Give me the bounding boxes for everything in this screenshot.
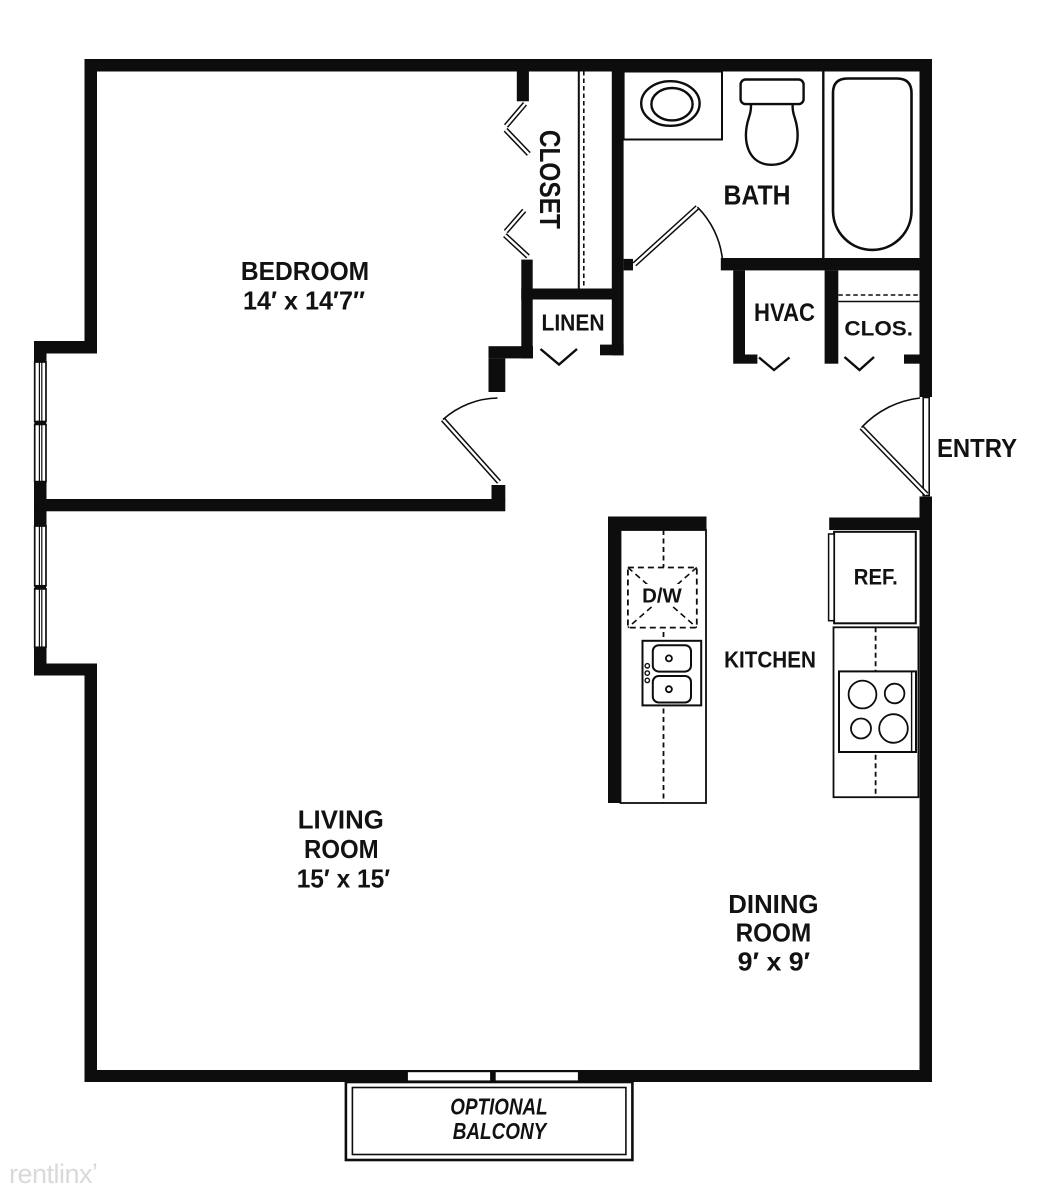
svg-text:15′ x 15′: 15′ x 15′ xyxy=(297,864,390,894)
svg-text:ROOM: ROOM xyxy=(304,834,379,864)
svg-text:CLOS.: CLOS. xyxy=(844,317,913,340)
svg-text:14′ x 14′7″: 14′ x 14′7″ xyxy=(243,286,365,316)
svg-text:ROOM: ROOM xyxy=(736,917,812,947)
svg-text:CLOSET: CLOSET xyxy=(533,130,565,229)
svg-text:9′ x 9′: 9′ x 9′ xyxy=(738,947,810,977)
svg-text:BEDROOM: BEDROOM xyxy=(241,256,369,286)
svg-text:OPTIONAL: OPTIONAL xyxy=(450,1094,547,1120)
svg-text:REF.: REF. xyxy=(854,565,898,590)
svg-text:BATH: BATH xyxy=(724,180,791,211)
svg-text:LIVING: LIVING xyxy=(298,805,384,835)
svg-text:KITCHEN: KITCHEN xyxy=(724,646,816,672)
svg-text:DINING: DINING xyxy=(728,889,818,919)
svg-text:HVAC: HVAC xyxy=(754,299,815,327)
svg-text:BALCONY: BALCONY xyxy=(453,1118,549,1144)
svg-text:D/W: D/W xyxy=(642,586,682,608)
svg-text:LINEN: LINEN xyxy=(542,309,605,335)
svg-text:rentlinxʼ: rentlinxʼ xyxy=(9,1159,98,1189)
svg-text:ENTRY: ENTRY xyxy=(937,433,1017,463)
